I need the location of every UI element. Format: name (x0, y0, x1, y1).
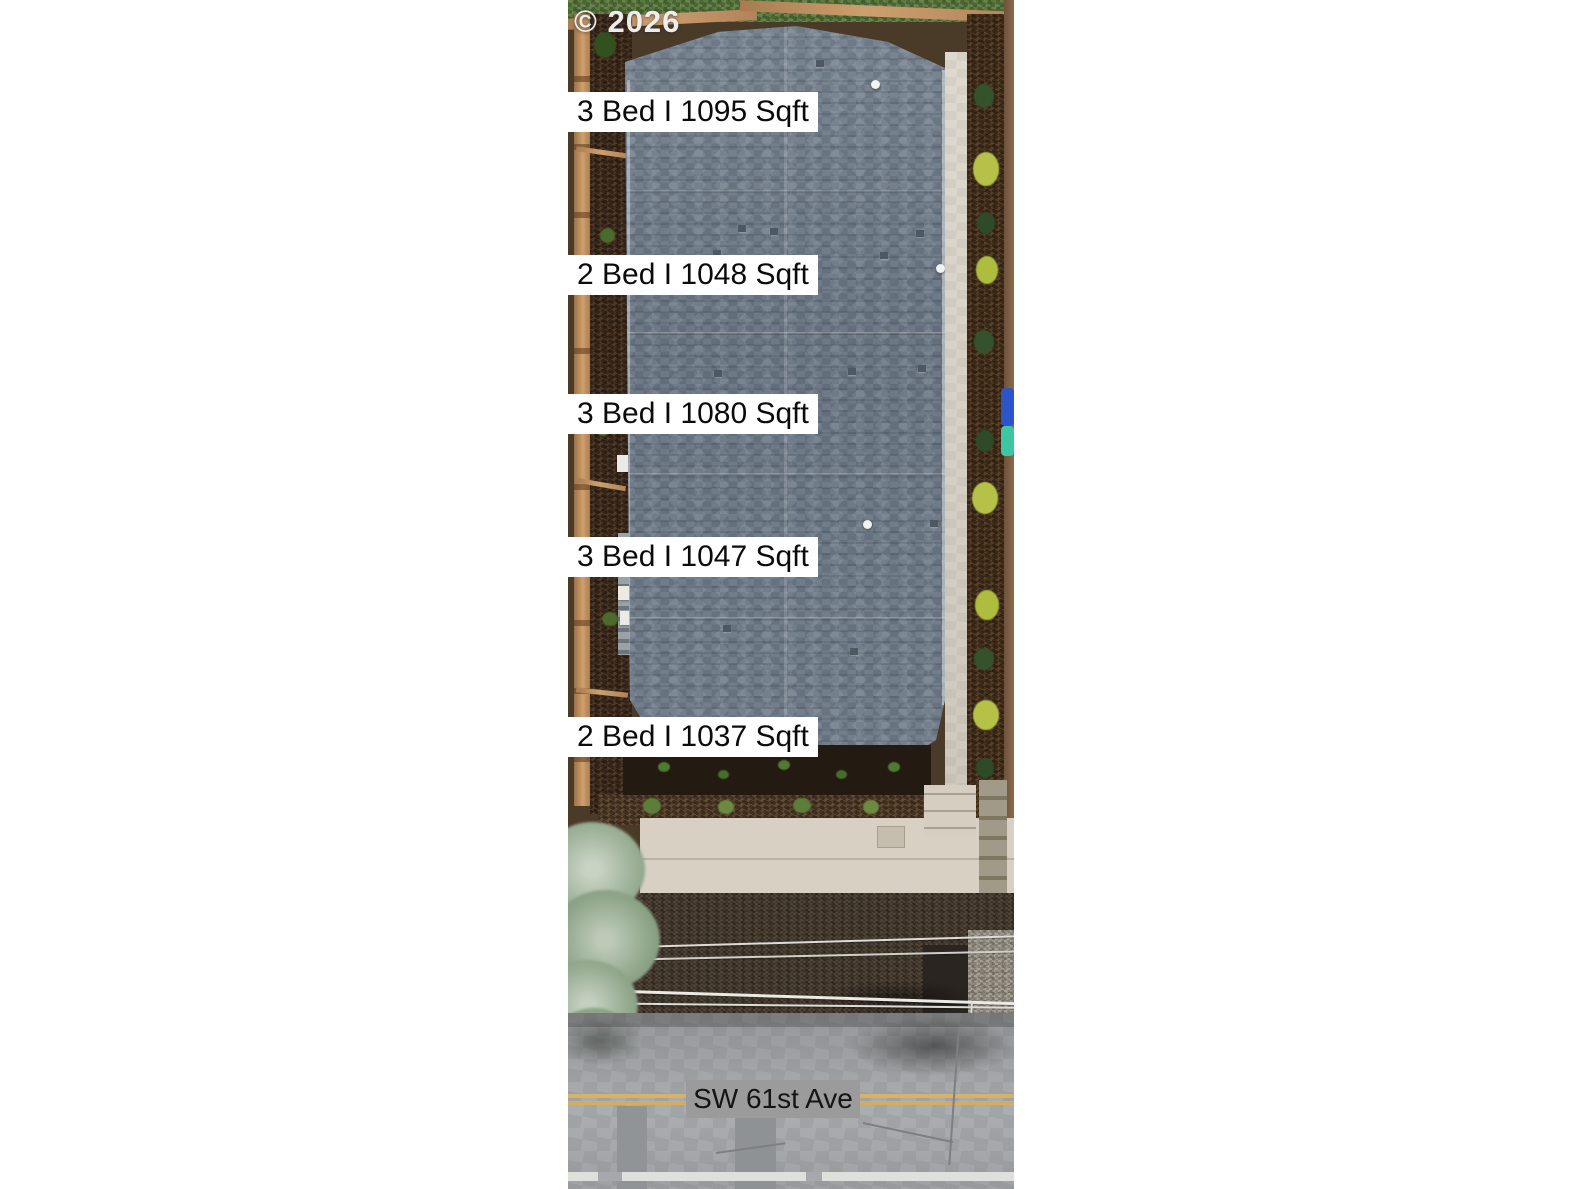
roof-vent (770, 228, 778, 235)
roof-vent (848, 368, 856, 375)
yellow-shrub (972, 482, 998, 514)
gutter-right (942, 70, 945, 705)
roof-vent (930, 520, 938, 527)
white-line-gap (598, 1172, 622, 1181)
bed-plant (718, 770, 729, 779)
front-plant (793, 798, 811, 813)
roof-dome-vent (863, 520, 872, 529)
roof-section-seam (618, 190, 948, 193)
street-name-label: SW 61st Ave (686, 1080, 860, 1118)
green-shrub (976, 430, 994, 452)
roof-vent (723, 625, 731, 632)
bed-plant (836, 770, 847, 779)
yellow-shrub (975, 590, 999, 620)
roof-section-seam (618, 473, 948, 476)
roof-vent (714, 370, 722, 377)
white-line-gap (806, 1172, 822, 1181)
roof-section-seam (618, 332, 948, 335)
front-plant (643, 798, 661, 814)
roof-vent (880, 252, 888, 259)
bed-plant (888, 762, 900, 772)
roof-vent (916, 230, 924, 237)
yellow-shrub (976, 256, 998, 284)
roof-vent (738, 225, 746, 232)
right-sidewalk (945, 52, 968, 902)
green-shrub (974, 330, 994, 354)
green-shrub (974, 648, 994, 670)
unit-specs-label: 3 Bed I 1047 Sqft (568, 537, 818, 577)
front-plant (718, 800, 734, 814)
entry-stairs (924, 785, 976, 837)
roof-dome-vent (871, 80, 880, 89)
parked-car-blue (1001, 388, 1014, 426)
shrub (602, 612, 618, 626)
green-shrub (976, 758, 994, 778)
unit-specs-label: 2 Bed I 1048 Sqft (568, 255, 818, 295)
roof-dome-vent (936, 264, 945, 273)
yellow-shrub (973, 152, 999, 186)
gutter-top-right (886, 37, 946, 66)
roof-vent (816, 60, 824, 67)
aerial-photo: 11078 #5 3 Bed I 1095 Sqft 11076 #4 2 Be… (568, 0, 1014, 1189)
unit-specs-label: 3 Bed I 1095 Sqft (568, 92, 818, 132)
roof-vent (918, 365, 926, 372)
roof-vent (850, 648, 858, 655)
bed-plant (658, 762, 670, 772)
green-shrub (974, 84, 994, 108)
green-shrub (977, 212, 995, 234)
roof-section-seam (618, 617, 948, 620)
listing-photo-page: 11078 #5 3 Bed I 1095 Sqft 11076 #4 2 Be… (0, 0, 1585, 1189)
front-plant (863, 800, 879, 814)
unit-specs-label: 2 Bed I 1037 Sqft (568, 717, 818, 757)
unit-specs-label: 3 Bed I 1080 Sqft (568, 394, 818, 434)
parked-car-teal (1001, 426, 1014, 456)
patio-inset-panel (877, 826, 905, 848)
bed-plant (778, 760, 790, 770)
shrub (600, 228, 615, 243)
yellow-shrub (973, 700, 999, 730)
road-wet-stain (848, 1016, 1014, 1076)
road-white-line (568, 1172, 1014, 1181)
copyright-watermark: © 2026 (574, 4, 680, 40)
